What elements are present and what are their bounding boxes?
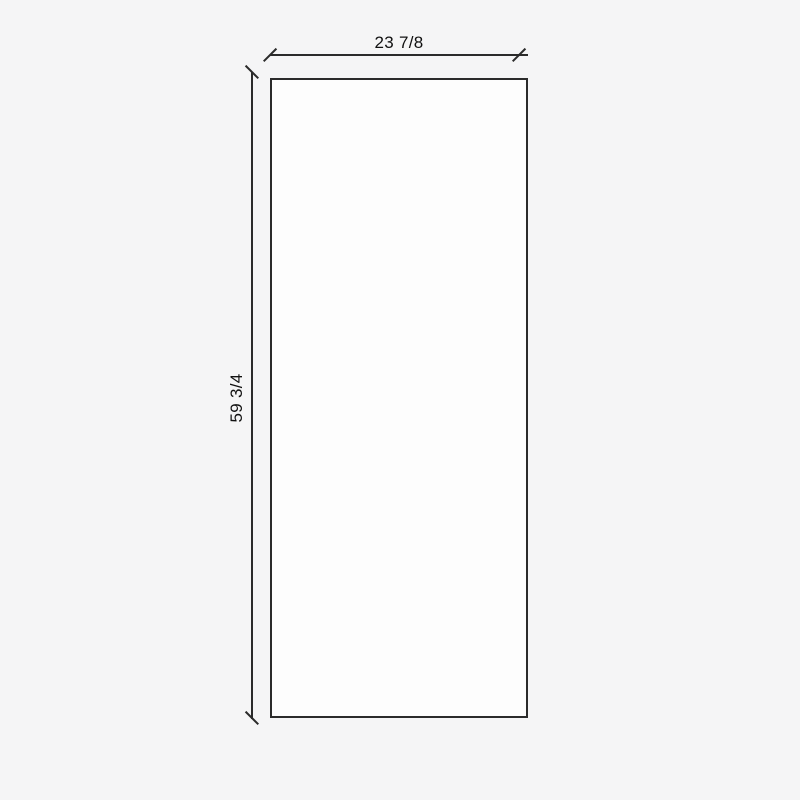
height-dimension-line: [251, 72, 253, 719]
panel-rectangle: [270, 78, 528, 718]
width-dimension-label: 23 7/8: [270, 33, 528, 53]
height-dimension-label: 59 3/4: [227, 373, 247, 422]
width-dimension-line: [270, 54, 528, 56]
drawing-canvas: 23 7/8 59 3/4: [0, 0, 800, 800]
